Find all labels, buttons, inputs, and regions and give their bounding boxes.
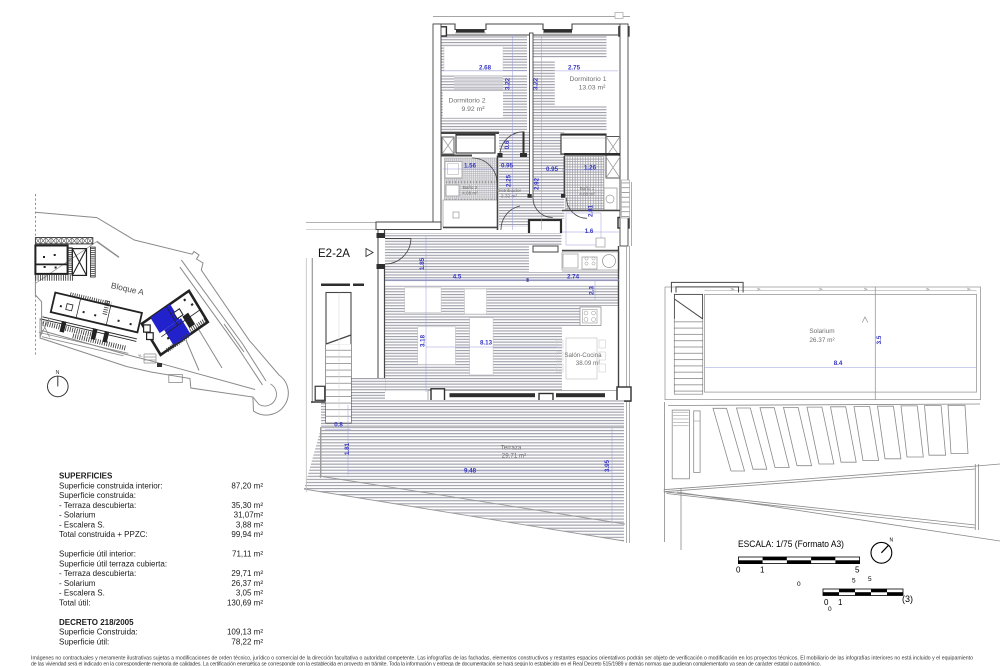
svg-text:- Terraza descubierta:: - Terraza descubierta: xyxy=(59,569,136,578)
svg-text:31,07m²: 31,07m² xyxy=(234,511,264,520)
svg-text:1: 1 xyxy=(838,598,843,607)
svg-text:3.22: 3.22 xyxy=(505,77,512,90)
svg-text:0: 0 xyxy=(828,606,832,613)
svg-text:1.26: 1.26 xyxy=(584,165,597,172)
svg-text:5: 5 xyxy=(852,578,856,585)
svg-text:99,94 m²: 99,94 m² xyxy=(231,530,263,539)
svg-text:SUPERFICIES: SUPERFICIES xyxy=(59,472,113,481)
svg-text:8.4: 8.4 xyxy=(834,360,843,367)
svg-text:N: N xyxy=(890,538,894,544)
svg-text:- Escalera S.: - Escalera S. xyxy=(59,520,105,529)
svg-text:5: 5 xyxy=(868,576,872,583)
svg-text:2.92: 2.92 xyxy=(534,177,541,190)
svg-text:4.5: 4.5 xyxy=(453,274,462,281)
svg-text:71,11 m²: 71,11 m² xyxy=(232,550,263,559)
svg-text:26.37 m²: 26.37 m² xyxy=(809,337,834,344)
svg-text:YL.: YL. xyxy=(138,354,143,358)
svg-text:0.8: 0.8 xyxy=(334,422,343,429)
svg-text:Terraza: Terraza xyxy=(501,445,522,452)
svg-text:0.6: 0.6 xyxy=(504,140,511,149)
svg-text:N: N xyxy=(56,370,60,376)
svg-text:1: 1 xyxy=(760,566,765,575)
svg-text:29,71 m²: 29,71 m² xyxy=(231,569,263,578)
svg-text:Superficie útil terraza cubier: Superficie útil terraza cubierta: xyxy=(59,559,167,568)
svg-text:0: 0 xyxy=(797,581,801,588)
svg-text:87,20 m²: 87,20 m² xyxy=(231,481,263,490)
svg-text:Superficie Construida:: Superficie Construida: xyxy=(59,628,138,637)
svg-text:1.6: 1.6 xyxy=(585,228,594,235)
svg-text:- Escalera S.: - Escalera S. xyxy=(59,589,105,598)
svg-text:- Solarium: - Solarium xyxy=(59,511,96,520)
svg-text:3.18: 3.18 xyxy=(420,334,427,347)
svg-text:38.09 m²: 38.09 m² xyxy=(576,360,600,367)
svg-text:0.95: 0.95 xyxy=(501,163,514,170)
svg-text:26,37 m²: 26,37 m² xyxy=(231,579,263,588)
svg-text:- Solarium: - Solarium xyxy=(59,579,96,588)
svg-text:Baño 2: Baño 2 xyxy=(463,185,478,190)
svg-text:2.25: 2.25 xyxy=(506,174,513,187)
svg-text:Superficie construida interior: Superficie construida interior: xyxy=(59,481,163,490)
svg-text:Total construida + PPZC:: Total construida + PPZC: xyxy=(59,530,148,539)
svg-text:2.3: 2.3 xyxy=(589,286,596,295)
svg-text:Salón-Cocina: Salón-Cocina xyxy=(564,352,602,359)
svg-text:3.22: 3.22 xyxy=(533,77,540,90)
svg-text:0: 0 xyxy=(736,566,741,575)
svg-text:de las viviendad será el indic: de las viviendad será el indicado en la … xyxy=(31,662,821,666)
svg-text:- Terraza descubierta:: - Terraza descubierta: xyxy=(59,501,136,510)
svg-text:E2-2A: E2-2A xyxy=(318,248,350,260)
svg-text:3.5: 3.5 xyxy=(876,335,883,344)
svg-text:Distribuidor: Distribuidor xyxy=(497,188,522,194)
svg-text:4.08 m²: 4.08 m² xyxy=(462,191,478,196)
svg-text:3.95: 3.95 xyxy=(604,459,611,472)
svg-text:1.81: 1.81 xyxy=(344,442,351,455)
svg-text:0.95: 0.95 xyxy=(546,166,559,173)
svg-text:Baño 1: Baño 1 xyxy=(580,186,595,191)
svg-text:Solarium: Solarium xyxy=(809,328,834,335)
svg-text:4.68 m²: 4.68 m² xyxy=(579,192,595,197)
svg-text:9.92 m²: 9.92 m² xyxy=(461,106,485,113)
svg-text:1.56: 1.56 xyxy=(464,163,477,170)
svg-text:ESCALA: 1/75 (Formato A3): ESCALA: 1/75 (Formato A3) xyxy=(738,539,844,550)
svg-text:Superficie construida:: Superficie construida: xyxy=(59,491,136,500)
svg-text:8.13: 8.13 xyxy=(480,340,493,347)
svg-text:13.03 m²: 13.03 m² xyxy=(579,85,607,92)
svg-text:35,30 m²: 35,30 m² xyxy=(231,501,263,510)
svg-text:78,22 m²: 78,22 m² xyxy=(231,637,263,646)
svg-text:Dormitorio 1: Dormitorio 1 xyxy=(569,76,606,83)
svg-text:3,88 m²: 3,88 m² xyxy=(236,520,263,529)
svg-text:109,13 m²: 109,13 m² xyxy=(227,628,263,637)
svg-text:1.85: 1.85 xyxy=(419,257,426,270)
svg-text:5: 5 xyxy=(855,566,860,575)
svg-text:2.68: 2.68 xyxy=(479,65,492,72)
svg-text:Superficie útil:: Superficie útil: xyxy=(59,637,109,646)
svg-text:DECRETO 218/2005: DECRETO 218/2005 xyxy=(59,618,134,627)
svg-text:Dormitorio 2: Dormitorio 2 xyxy=(448,98,485,105)
svg-text:2.81: 2.81 xyxy=(588,204,595,217)
svg-text:29.71 m²: 29.71 m² xyxy=(502,453,526,460)
svg-text:130,69 m²: 130,69 m² xyxy=(227,598,263,607)
svg-text:2.75: 2.75 xyxy=(568,65,581,72)
svg-text:9.48: 9.48 xyxy=(464,468,477,475)
svg-text:Total útil:: Total útil: xyxy=(59,598,91,607)
svg-text:2.32 m²: 2.32 m² xyxy=(501,194,518,200)
svg-text:Superficie útil interior:: Superficie útil interior: xyxy=(59,550,136,559)
svg-text:(3): (3) xyxy=(902,594,913,604)
svg-text:3,05 m²: 3,05 m² xyxy=(236,589,263,598)
svg-text:2.74: 2.74 xyxy=(567,274,580,281)
